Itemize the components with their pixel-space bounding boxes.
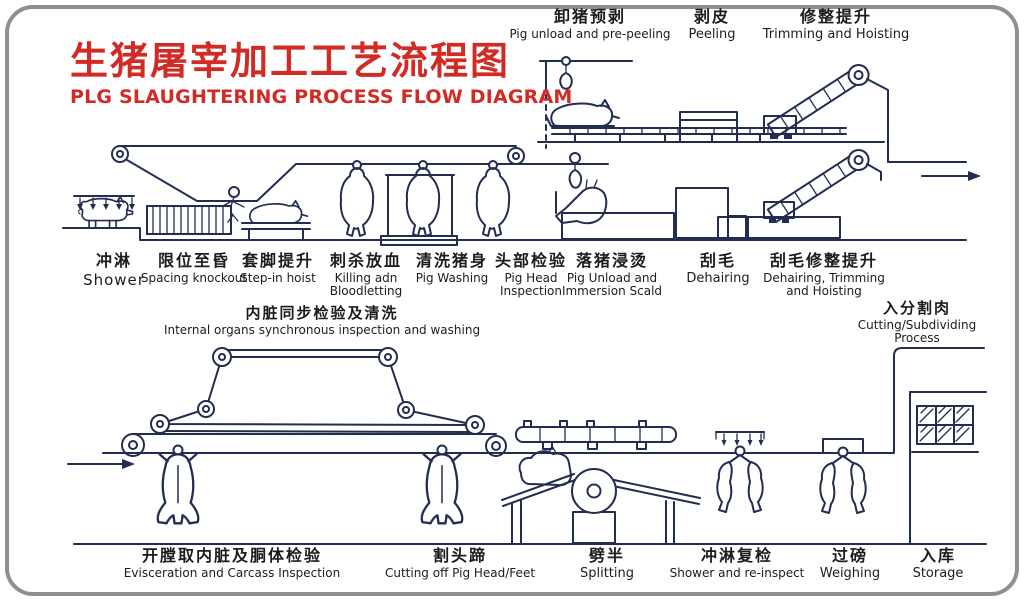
label-en: Spacing knockout	[141, 272, 247, 286]
label-cutting-subdividing: 入分割肉 Cutting/Subdividing Process	[858, 300, 976, 346]
label-en: Evisceration and Carcass Inspection	[124, 567, 340, 581]
label-splitting: 劈半 Splitting	[580, 547, 634, 582]
label-shower: 冲淋 Shower	[83, 252, 145, 289]
label-en: Cutting off Pig Head/Feet	[385, 567, 535, 581]
label-zh: 剥皮	[688, 8, 735, 26]
label-dehair-trim-hoist: 刮毛修整提升 Dehairing, Trimming and Hoisting	[758, 252, 890, 299]
restrainer-drawing	[147, 206, 231, 234]
label-zh: 刮毛修整提升	[758, 252, 890, 270]
immersion-scald-tank	[562, 213, 674, 239]
storage-room	[910, 392, 986, 544]
label-storage: 入库 Storage	[913, 547, 964, 582]
hanging-pigs-kill-line	[341, 161, 509, 236]
label-en: Step-in hoist	[240, 272, 316, 286]
elevator-trimming-hoist	[764, 61, 981, 181]
weighing-station	[820, 439, 865, 513]
label-organ-inspection-washing: 内脏同步检验及清洗 Internal organs synchronous in…	[164, 305, 480, 337]
label-en: Shower	[83, 272, 145, 289]
label-step-in-hoist: 套脚提升 Step-in hoist	[240, 252, 316, 285]
label-zh: 刺杀放血	[321, 252, 411, 270]
label-zh: 清洗猪身	[416, 252, 489, 270]
label-spacing-knockout: 限位至昏 Spacing knockout	[141, 252, 247, 285]
pre-peel-mezzanine	[538, 57, 884, 148]
overhead-rail-kill-line	[112, 146, 608, 201]
poster-title-zh: 生猪屠宰加工工艺流程图	[70, 42, 573, 82]
saw-blade	[572, 469, 616, 513]
pig-falling-into-scald	[556, 188, 606, 224]
label-zh: 落猪浸烫	[553, 252, 671, 270]
label-en: Pig Washing	[416, 272, 489, 286]
label-dehairing: 刮毛 Dehairing	[686, 252, 749, 287]
label-en: Shower and re-inspect	[670, 567, 805, 581]
label-pig-unload-pre-peeling: 卸猪预剥 Pig unload and pre-peeling	[509, 8, 670, 41]
label-zh: 劈半	[580, 547, 634, 565]
flow-arrow-right-top	[968, 171, 981, 181]
elevator-dehair-trim-hoist	[764, 146, 881, 224]
label-en: Pig Unload and Immersion Scald	[553, 272, 671, 300]
step-in-hoist-drawing	[223, 187, 310, 240]
label-cutting-head-feet: 割头蹄 Cutting off Pig Head/Feet	[385, 547, 535, 580]
label-zh: 入库	[913, 547, 964, 565]
head-cutting-chain-conveyor	[516, 421, 676, 449]
exit-to-cutting-line	[894, 348, 984, 452]
label-en: Internal organs synchronous inspection a…	[164, 324, 480, 338]
shower-station-drawing	[74, 196, 135, 227]
splitting-saw-station	[502, 446, 700, 543]
label-evisceration-inspection: 开膛取内脏及胴体检验 Evisceration and Carcass Insp…	[124, 547, 340, 580]
label-zh: 冲淋复检	[670, 547, 805, 565]
label-trimming-hoisting: 修整提升 Trimming and Hoisting	[763, 8, 909, 43]
label-en: Killing adn Bloodletting	[321, 272, 411, 300]
label-peeling: 剥皮 Peeling	[688, 8, 735, 43]
eviscerated-carcasses	[158, 446, 463, 524]
label-en: Pig unload and pre-peeling	[509, 28, 670, 42]
label-zh: 套脚提升	[240, 252, 316, 270]
label-zh: 开膛取内脏及胴体检验	[124, 547, 340, 565]
dehairing-machine	[676, 188, 728, 238]
label-zh: 卸猪预剥	[509, 8, 670, 26]
label-shower-reinspect: 冲淋复检 Shower and re-inspect	[670, 547, 805, 580]
label-en: Dehairing	[686, 272, 749, 287]
label-en: Dehairing, Trimming and Hoisting	[758, 272, 890, 300]
label-zh: 割头蹄	[385, 547, 535, 565]
label-zh: 入分割肉	[858, 300, 976, 317]
label-zh: 冲淋	[83, 252, 145, 270]
label-zh: 修整提升	[763, 8, 909, 26]
label-weighing: 过磅 Weighing	[820, 547, 880, 582]
poster-title-en: PLG SLAUGHTERING PROCESS FLOW DIAGRAM	[70, 86, 573, 108]
label-pig-washing: 清洗猪身 Pig Washing	[416, 252, 489, 285]
poster-title: 生猪屠宰加工工艺流程图 PLG SLAUGHTERING PROCESS FLO…	[70, 42, 573, 108]
flow-diagram-poster: 生猪屠宰加工工艺流程图 PLG SLAUGHTERING PROCESS FLO…	[0, 0, 1024, 601]
label-killing-bloodletting: 刺杀放血 Killing adn Bloodletting	[321, 252, 411, 299]
label-en: Trimming and Hoisting	[763, 28, 909, 43]
label-en: Weighing	[820, 567, 880, 582]
organ-inspection-conveyor	[151, 348, 484, 434]
label-en: Cutting/Subdividing Process	[858, 319, 976, 347]
label-zh: 限位至昏	[141, 252, 247, 270]
flow-arrow-right-bottom	[122, 459, 135, 469]
label-zh: 刮毛	[686, 252, 749, 270]
shower-reinspect-station	[716, 432, 764, 512]
label-en: Splitting	[580, 567, 634, 582]
label-en: Storage	[913, 567, 964, 582]
label-unload-immersion-scald: 落猪浸烫 Pig Unload and Immersion Scald	[553, 252, 671, 299]
label-zh: 内脏同步检验及清洗	[164, 305, 480, 322]
label-zh: 过磅	[820, 547, 880, 565]
label-en: Peeling	[688, 28, 735, 43]
